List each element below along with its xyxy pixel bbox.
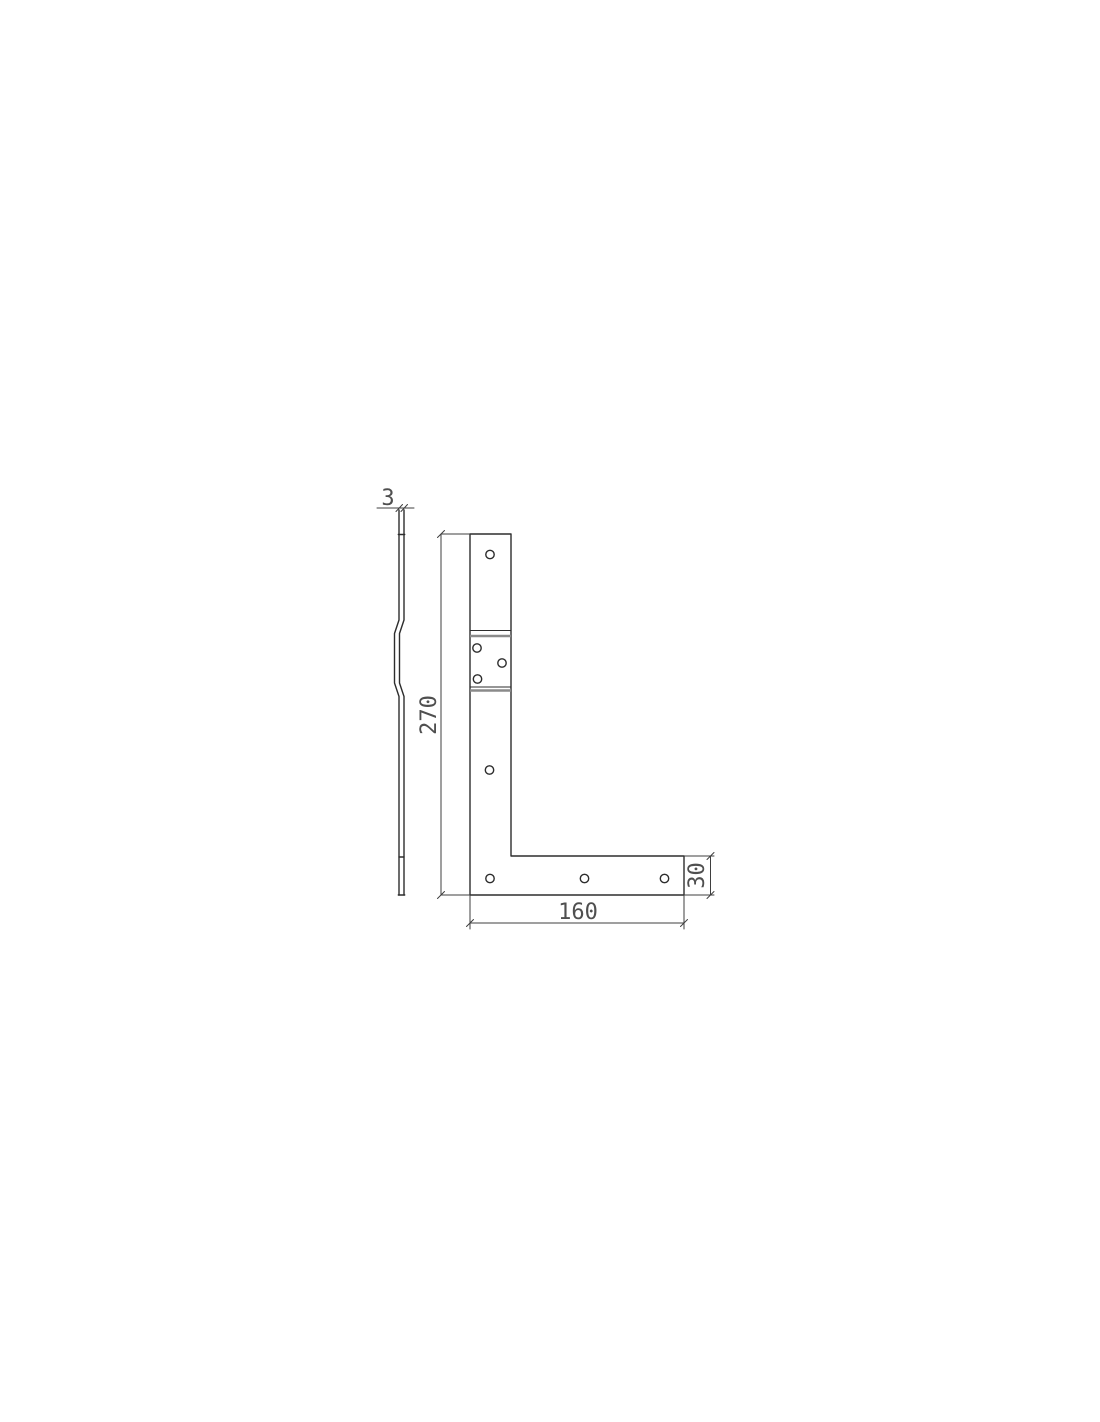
hole	[473, 675, 481, 683]
side-view-strip-left-edge	[395, 510, 400, 895]
hole	[473, 644, 481, 652]
dim-height-label: 270	[417, 695, 442, 735]
hole	[486, 550, 494, 558]
dim-length-label: 160	[558, 900, 598, 925]
dim-thickness-label: 3	[381, 486, 394, 511]
side-view-strip-right-edge	[400, 510, 405, 895]
hole	[498, 659, 506, 667]
dim-legwidth-label: 30	[685, 862, 710, 889]
front-view-outline	[470, 534, 684, 895]
hole	[660, 874, 668, 882]
hole	[485, 766, 493, 774]
dimension-texts: 3 270 160 30	[381, 486, 710, 925]
technical-drawing-canvas: 3 270 160 30	[0, 0, 1100, 1422]
drawing-page: 3 270 160 30	[0, 0, 1100, 1422]
hole	[486, 874, 494, 882]
hole	[580, 874, 588, 882]
